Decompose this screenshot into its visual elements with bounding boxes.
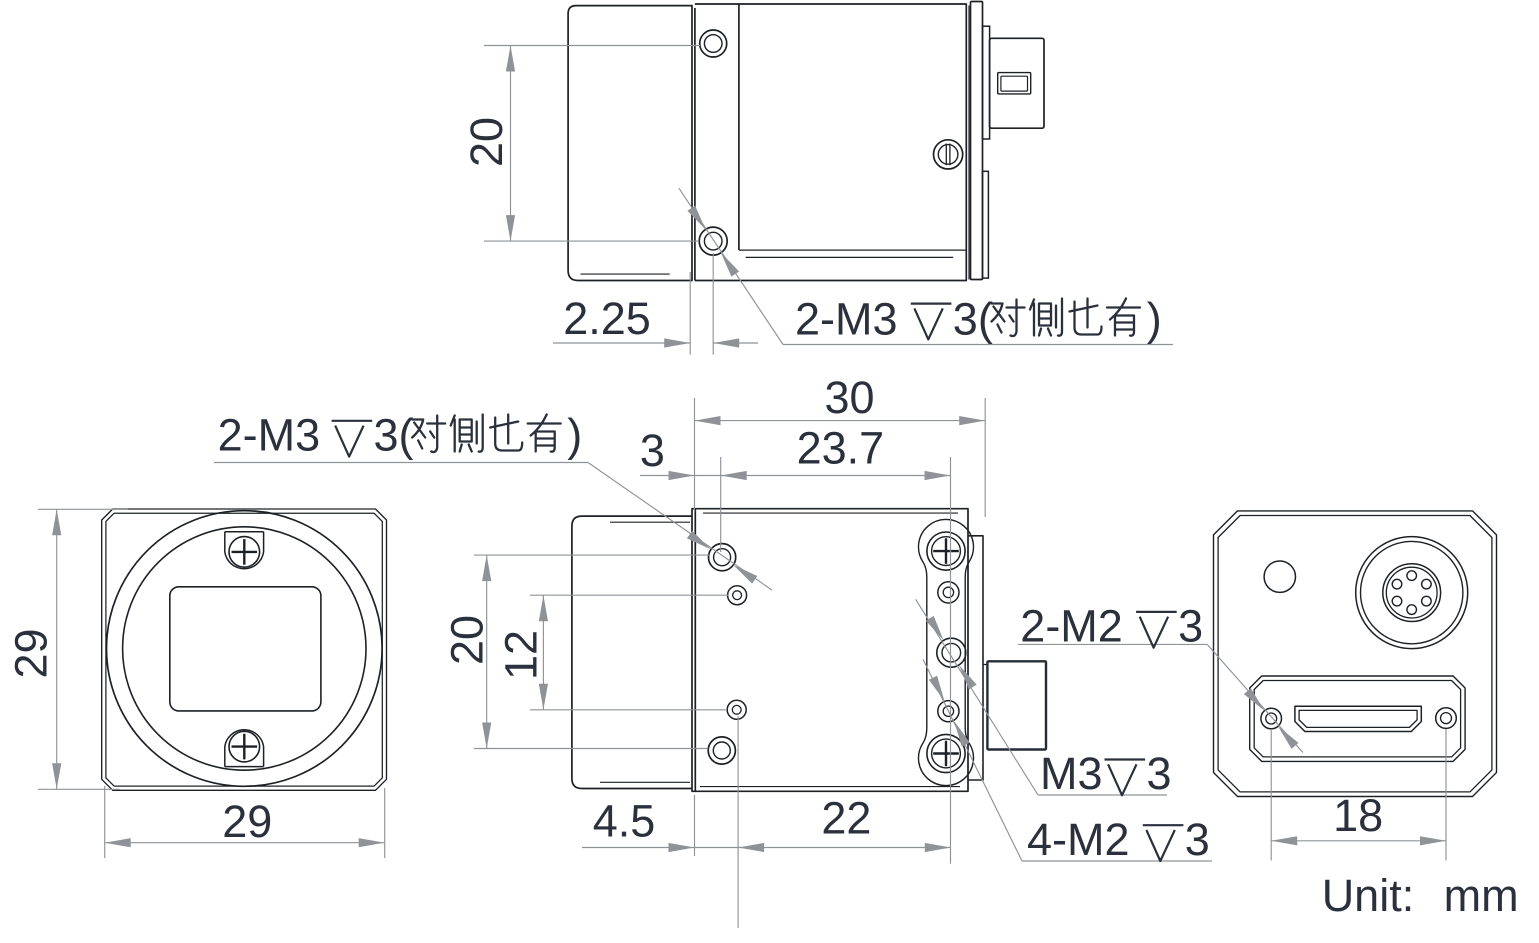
svg-text:4-M2: 4-M2 (1027, 814, 1130, 865)
svg-text:3: 3 (1147, 748, 1172, 799)
svg-text:2-M2: 2-M2 (1020, 601, 1123, 652)
svg-text:3: 3 (1185, 814, 1210, 865)
svg-text:3(: 3( (953, 294, 993, 345)
svg-text:3: 3 (640, 425, 665, 476)
svg-text:18: 18 (1333, 790, 1383, 841)
svg-text:22: 22 (821, 793, 871, 844)
svg-text:29: 29 (6, 628, 57, 678)
svg-text:23.7: 23.7 (797, 423, 885, 474)
svg-text:4.5: 4.5 (593, 796, 656, 847)
svg-text:12: 12 (496, 630, 547, 680)
svg-text:mm: mm (1444, 870, 1519, 921)
svg-text:2.25: 2.25 (563, 293, 651, 344)
svg-text:M3: M3 (1040, 748, 1103, 799)
svg-text:2-M3: 2-M3 (218, 410, 321, 461)
svg-text:): ) (1147, 294, 1162, 345)
svg-text:Unit:: Unit: (1322, 870, 1415, 921)
svg-text:3(: 3( (374, 410, 414, 461)
svg-text:3: 3 (1178, 601, 1203, 652)
svg-text:29: 29 (222, 796, 272, 847)
svg-text:2-M3: 2-M3 (795, 294, 898, 345)
svg-text:20: 20 (442, 615, 493, 665)
svg-text:): ) (567, 410, 582, 461)
svg-text:20: 20 (461, 117, 512, 167)
svg-text:30: 30 (824, 372, 874, 423)
